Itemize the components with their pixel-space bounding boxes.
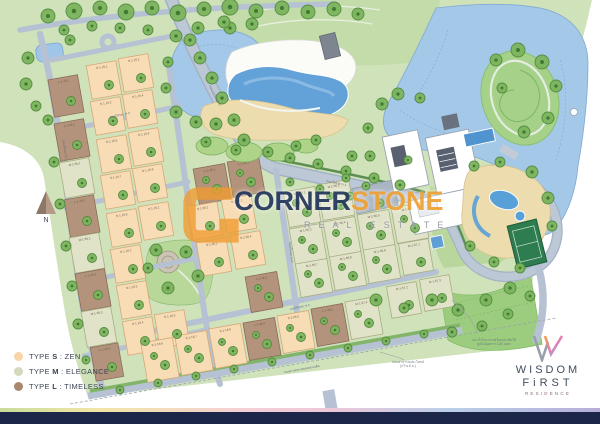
tree-icon xyxy=(215,258,224,267)
plot-M-1-57.1: M-1-57.1 xyxy=(398,239,433,276)
tree-icon xyxy=(327,2,341,16)
tree-icon xyxy=(129,265,138,274)
tree-icon xyxy=(219,339,226,346)
plot-M-1-56.7: M-1-56.7 xyxy=(295,258,332,297)
tree-icon xyxy=(137,74,146,83)
legend-item-label: TYPE M : ELEGANCE xyxy=(29,367,109,376)
tree-icon xyxy=(339,264,346,271)
tree-icon xyxy=(331,326,340,335)
tree-icon xyxy=(173,330,182,339)
tree-icon xyxy=(547,221,557,231)
legend-item-label: TYPE S : ZEN xyxy=(29,352,81,361)
tree-icon xyxy=(253,332,260,339)
plot-S-1-16.3: S-1-16.3 xyxy=(116,281,151,320)
plot-S-1-15.8: S-1-15.8 xyxy=(132,164,167,203)
plot-M-1-56.8: M-1-56.8 xyxy=(329,251,366,290)
plot-M-1-55.2: M-1-55.2 xyxy=(69,233,105,274)
plot-M-1-56.5: M-1-56.5 xyxy=(357,209,395,250)
tree-icon xyxy=(197,2,211,16)
tree-icon xyxy=(268,358,276,366)
plot-M-1-57.3: M-1-57.3 xyxy=(419,275,454,312)
tree-icon xyxy=(49,157,59,167)
tree-icon xyxy=(115,23,125,33)
tree-icon xyxy=(263,340,272,349)
plot-S-1-55.4: S-1-55.4 xyxy=(230,231,265,270)
tree-icon xyxy=(343,238,352,247)
tree-icon xyxy=(162,282,174,294)
tree-icon xyxy=(392,88,404,100)
tree-icon xyxy=(346,192,354,200)
tree-icon xyxy=(355,311,362,318)
tree-icon xyxy=(150,244,162,256)
tree-icon xyxy=(43,115,53,125)
legend-item-type-s: TYPE S : ZEN xyxy=(14,352,109,361)
tree-icon xyxy=(231,145,241,155)
tree-icon xyxy=(185,346,192,353)
tree-icon xyxy=(313,159,323,169)
tree-icon xyxy=(20,78,32,90)
tree-icon xyxy=(490,54,502,66)
tree-icon xyxy=(535,55,549,69)
tree-icon xyxy=(306,351,314,359)
plot-S-1-16.1: S-1-16.1 xyxy=(138,202,173,241)
tree-icon xyxy=(352,8,364,20)
tree-icon xyxy=(116,386,124,394)
tree-icon xyxy=(184,34,196,46)
tree-icon xyxy=(477,321,487,331)
tree-icon xyxy=(401,216,408,223)
tree-icon xyxy=(228,114,240,126)
plot-S-1-15.5: S-1-15.5 xyxy=(96,135,131,174)
wisdom-first-logo: WISDOM FiRST RESIDENCE xyxy=(503,334,593,396)
tree-icon xyxy=(438,294,447,303)
tree-icon xyxy=(497,83,507,93)
tree-icon xyxy=(286,178,294,186)
tree-icon xyxy=(147,148,156,157)
plot-M-1-55.3: M-1-55.3 xyxy=(81,307,117,348)
footer-navy-bar xyxy=(0,412,600,424)
tree-icon xyxy=(203,177,210,184)
tree-icon xyxy=(143,25,153,35)
tree-icon xyxy=(411,224,420,233)
tree-icon xyxy=(141,110,150,119)
plot-S-1-15.9: S-1-15.9 xyxy=(106,209,141,248)
plot-S-1-55.1: S-1-55.1 xyxy=(187,202,222,241)
tree-icon xyxy=(301,5,315,19)
legend-item-label: TYPE L : TIMELESS xyxy=(29,382,104,391)
tree-icon xyxy=(373,257,380,264)
tree-icon xyxy=(31,101,41,111)
tree-icon xyxy=(141,337,150,346)
tree-icon xyxy=(469,161,479,171)
tree-icon xyxy=(192,372,200,380)
plot-S-1-16.8: S-1-16.8 xyxy=(209,324,247,369)
plot-S-1-55.3: S-1-55.3 xyxy=(196,238,231,277)
tree-icon xyxy=(395,180,405,190)
tree-icon xyxy=(194,52,206,64)
tree-icon xyxy=(143,263,153,273)
tree-icon xyxy=(229,347,238,356)
plot-S-1-15.7: S-1-15.7 xyxy=(100,171,135,210)
plot-M-1-56.9: M-1-56.9 xyxy=(363,244,400,283)
tree-icon xyxy=(115,155,124,164)
tree-icon xyxy=(151,353,158,360)
tree-icon xyxy=(170,106,182,118)
tree-icon xyxy=(78,179,87,188)
tree-icon xyxy=(349,272,358,281)
tree-icon xyxy=(163,57,173,67)
tree-icon xyxy=(316,185,324,193)
tree-icon xyxy=(465,241,475,251)
tree-icon xyxy=(65,35,75,45)
plot-S-1-15.1: S-1-15.1 xyxy=(86,61,121,100)
plot-L-1-46.3: L-1-46.3 xyxy=(245,271,283,312)
tree-icon xyxy=(275,1,289,15)
tree-icon xyxy=(376,199,384,207)
tree-icon xyxy=(230,365,238,373)
tree-icon xyxy=(297,333,306,342)
tree-icon xyxy=(303,208,312,217)
tree-icon xyxy=(94,291,103,300)
tree-icon xyxy=(249,251,258,260)
tree-icon xyxy=(526,166,538,178)
tree-icon xyxy=(246,18,258,30)
plot-L-1-46.4: L-1-46.4 xyxy=(243,318,281,361)
tree-icon xyxy=(293,200,300,207)
north-arrow-icon xyxy=(28,190,64,216)
plot-S-1-15.2: S-1-15.2 xyxy=(118,54,153,93)
tree-icon xyxy=(247,178,256,187)
tree-icon xyxy=(61,241,71,251)
tree-icon xyxy=(59,25,69,35)
tree-icon xyxy=(119,191,128,200)
tree-icon xyxy=(291,141,301,151)
tree-icon xyxy=(255,285,262,292)
tree-icon xyxy=(213,185,222,194)
tree-icon xyxy=(347,151,357,161)
tree-icon xyxy=(321,318,328,325)
tree-icon xyxy=(333,230,340,237)
tree-icon xyxy=(206,72,218,84)
tree-icon xyxy=(525,291,535,301)
tree-icon xyxy=(367,223,374,230)
tree-icon xyxy=(161,83,171,93)
tree-icon xyxy=(66,3,82,19)
tree-icon xyxy=(511,43,525,57)
tree-icon xyxy=(299,237,306,244)
tree-icon xyxy=(365,319,374,328)
tree-icon xyxy=(305,271,312,278)
tree-icon xyxy=(417,258,426,267)
tree-icon xyxy=(154,379,162,387)
tree-icon xyxy=(287,325,294,332)
tree-icon xyxy=(22,52,34,64)
tree-icon xyxy=(151,184,160,193)
tree-icon xyxy=(265,293,274,302)
tree-icon xyxy=(135,301,144,310)
tree-icon xyxy=(83,217,92,226)
tree-icon xyxy=(342,174,350,182)
tree-icon xyxy=(518,126,530,138)
tree-icon xyxy=(192,22,204,34)
tree-icon xyxy=(382,337,390,345)
plot-S-1-55.2: S-1-55.2 xyxy=(221,195,256,234)
plot-type-legend: TYPE S : ZEN TYPE M : ELEGANCE TYPE L : … xyxy=(14,352,109,397)
legend-item-type-m: TYPE M : ELEGANCE xyxy=(14,367,109,376)
tree-icon xyxy=(190,116,202,128)
tree-icon xyxy=(100,328,109,337)
tree-icon xyxy=(376,98,388,110)
tree-icon xyxy=(550,80,562,92)
tree-icon xyxy=(195,354,204,363)
plot-M-1-56.1: M-1-56.1 xyxy=(283,186,321,227)
wisdom-w-mark-icon xyxy=(531,334,565,362)
tree-icon xyxy=(210,118,222,130)
plot-S-1-55.5: S-1-55.5 xyxy=(277,311,315,354)
plot-L-1-46.1: L-1-46.1 xyxy=(193,163,231,204)
tree-icon xyxy=(503,309,513,319)
tree-icon xyxy=(73,141,82,150)
tree-icon xyxy=(426,294,438,306)
tree-icon xyxy=(161,361,170,370)
tree-icon xyxy=(447,327,457,337)
tree-icon xyxy=(415,93,425,103)
legend-swatch xyxy=(14,352,23,361)
tree-icon xyxy=(399,303,409,313)
tree-icon xyxy=(88,254,97,263)
tree-icon xyxy=(118,4,134,20)
brand-name-line1: WISDOM xyxy=(503,364,593,376)
plot-S-1-15.6: S-1-15.6 xyxy=(128,128,163,167)
tree-icon xyxy=(542,192,554,204)
plot-L-1-45.2: L-1-45.2 xyxy=(54,119,90,162)
plan-annotation: (กว้าง 6 ม.) xyxy=(400,364,416,368)
tree-icon xyxy=(370,294,382,306)
tree-icon xyxy=(238,134,250,146)
tree-icon xyxy=(67,281,77,291)
tree-icon xyxy=(311,135,321,145)
tree-icon xyxy=(201,137,211,147)
tree-icon xyxy=(404,156,412,164)
tree-icon xyxy=(93,1,107,15)
tree-icon xyxy=(337,201,346,210)
plot-L-1-46.5: L-1-46.5 xyxy=(311,304,349,347)
tree-icon xyxy=(489,257,499,267)
tree-icon xyxy=(309,245,318,254)
lake-marker xyxy=(571,109,578,116)
tree-icon xyxy=(344,344,352,352)
tree-icon xyxy=(206,222,215,231)
tree-icon xyxy=(170,30,182,42)
tree-icon xyxy=(285,153,295,163)
tree-icon xyxy=(363,123,373,133)
brand-name-line2: FiRST xyxy=(503,377,593,389)
plot-L-1-45.3: L-1-45.3 xyxy=(64,195,100,238)
tree-icon xyxy=(504,282,516,294)
tree-icon xyxy=(420,330,428,338)
plot-S-1-16.2: S-1-16.2 xyxy=(110,245,145,284)
plot-M-1-55.1: M-1-55.1 xyxy=(59,158,95,199)
tree-icon xyxy=(157,222,166,231)
masterplan-page: L-1-45.1L-1-45.2M-1-55.1L-1-45.3M-1-55.2… xyxy=(0,0,600,424)
tree-icon xyxy=(515,263,525,273)
compass-label: N xyxy=(28,217,64,224)
plot-M-1-56.4: M-1-56.4 xyxy=(323,216,361,257)
plot-M-1-56.3: M-1-56.3 xyxy=(289,223,327,264)
brand-name-line3: RESIDENCE xyxy=(503,391,593,396)
tree-icon xyxy=(218,16,230,28)
tree-icon xyxy=(369,173,379,183)
tree-icon xyxy=(170,5,186,21)
tree-icon xyxy=(263,147,273,157)
north-compass: N xyxy=(28,190,64,224)
tree-icon xyxy=(192,270,204,282)
tree-icon xyxy=(67,97,76,106)
tree-icon xyxy=(480,294,492,306)
tree-icon xyxy=(495,157,505,167)
tree-icon xyxy=(365,151,375,161)
tree-icon xyxy=(41,9,55,23)
plot-L-1-46.2: L-1-46.2 xyxy=(227,156,265,197)
legend-swatch xyxy=(14,382,23,391)
tree-icon xyxy=(327,193,334,200)
tree-icon xyxy=(237,170,244,177)
tree-icon xyxy=(125,229,134,238)
tree-icon xyxy=(362,182,370,190)
tree-icon xyxy=(240,215,249,224)
plot-L-1-45.1: L-1-45.1 xyxy=(48,75,84,118)
tree-icon xyxy=(249,4,263,18)
tree-icon xyxy=(87,21,97,31)
legend-swatch xyxy=(14,367,23,376)
plot-S-1-15.4: S-1-15.4 xyxy=(122,90,157,129)
tree-icon xyxy=(180,246,192,258)
tree-icon xyxy=(315,279,324,288)
tree-icon xyxy=(73,319,83,329)
tree-icon xyxy=(222,0,238,15)
plot-L-1-45.4: L-1-45.4 xyxy=(75,269,111,312)
tree-icon xyxy=(105,81,114,90)
tree-icon xyxy=(377,231,386,240)
tree-icon xyxy=(145,1,159,15)
legend-item-type-l: TYPE L : TIMELESS xyxy=(14,382,109,391)
tree-icon xyxy=(542,112,554,124)
tree-icon xyxy=(383,265,392,274)
